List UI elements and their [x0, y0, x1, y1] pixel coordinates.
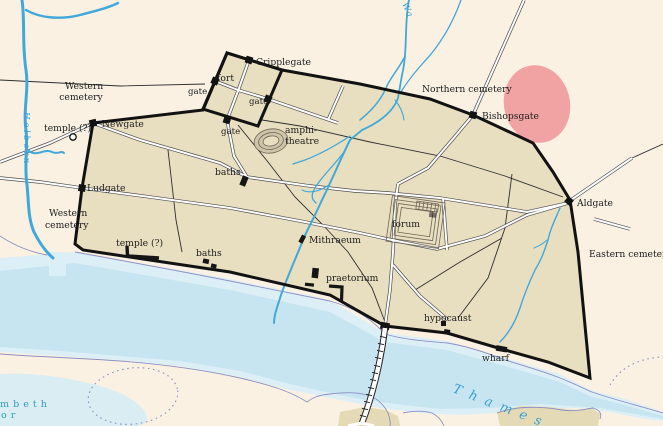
- label-western-cemetery-south-2: cemetery: [45, 220, 89, 231]
- label-northern-cemetery: Northern cemetery: [422, 84, 512, 95]
- label-fort-gate-east: gate: [249, 97, 268, 107]
- label-praetorium: praetorium: [326, 273, 379, 284]
- label-amphitheatre-2: theatre: [285, 136, 319, 147]
- label-fort: fort: [217, 73, 234, 84]
- label-eastern-cemetery: Eastern cemetery: [589, 249, 663, 260]
- map-svg: Western cemetery Western cemetery Northe…: [0, 0, 663, 426]
- label-temple-south: temple (?): [116, 238, 163, 249]
- ludgate-marker: [78, 184, 86, 192]
- label-hypocaust: hypocaust: [424, 313, 472, 324]
- label-bishopsgate: Bishopsgate: [482, 111, 539, 122]
- label-holborn: Holborn: [21, 111, 31, 166]
- temple-west-symbol: [70, 134, 76, 140]
- label-amphitheatre: amphi-: [285, 125, 317, 136]
- label-mithraeum: Mithraeum: [309, 235, 361, 246]
- label-ludgate: Ludgate: [87, 183, 125, 194]
- label-lambeth-partial: mbeth: [0, 399, 51, 410]
- label-wharf: wharf: [482, 353, 510, 364]
- label-baths-south: baths: [196, 248, 222, 259]
- label-fort-gate-west: gate: [188, 87, 207, 97]
- label-western-cemetery-north: Western: [65, 81, 103, 92]
- label-aldgate: Aldgate: [576, 198, 613, 209]
- riverside-tower-marker: [444, 329, 451, 335]
- label-newgate: Newgate: [102, 119, 144, 130]
- label-baths-north: baths: [215, 167, 241, 178]
- label-cripplegate: Cripplegate: [256, 57, 311, 68]
- label-western-cemetery-north-2: cemetery: [59, 92, 103, 103]
- label-temple-west: temple (?): [44, 123, 91, 134]
- label-fort-gate-south: gate: [221, 127, 240, 137]
- label-forum: forum: [392, 219, 420, 230]
- label-western-cemetery-south: Western: [49, 208, 87, 219]
- label-lambeth-partial-2: or: [1, 410, 19, 421]
- roman-london-map: Western cemetery Western cemetery Northe…: [0, 0, 663, 426]
